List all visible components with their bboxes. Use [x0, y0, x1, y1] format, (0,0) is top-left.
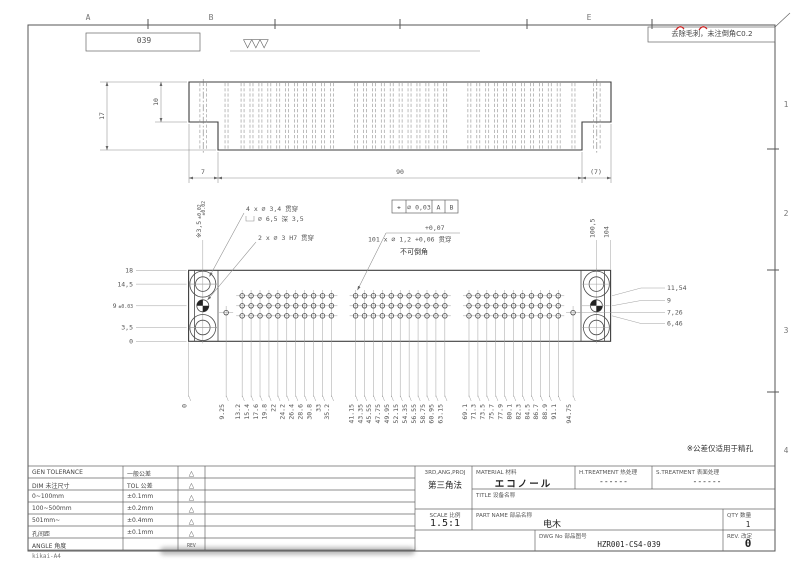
ordinate-elbow [496, 396, 498, 402]
qty-label: QTY 数量 [727, 511, 751, 519]
s-treatment-value: ------ [652, 477, 762, 486]
ordinate-label: 54.35 [401, 404, 409, 424]
ordinate-label: ※3,5±0.02 [195, 204, 203, 238]
callout-small-holes: 101 x ∅ 1,2 +0,06 贯穿 [368, 235, 451, 244]
ordinate-elbow [409, 396, 411, 402]
ordinate-elbow [278, 396, 280, 402]
ordinate-label: 84.5 [523, 404, 531, 420]
ordinate-leader [612, 301, 665, 306]
ordinate-label: 49.95 [383, 404, 391, 424]
h-treatment-label: H.TREATMENT 热处理 [579, 468, 637, 476]
ordinate-label: 9.25 [218, 404, 226, 420]
ordinate-elbow [323, 396, 325, 402]
fcf-position-icon: ⌖ [397, 204, 401, 212]
dowel-quadrant-fill [203, 306, 209, 312]
revision-triangle-icon: △ [189, 518, 195, 526]
ordinate-elbow [523, 396, 525, 402]
drawing-sheet: ABE12341710790(7)±0.0209.2513.215.417.61… [0, 0, 800, 566]
ordinate-label: 52.15 [392, 404, 400, 424]
ordinate-label: 17.6 [252, 404, 260, 420]
ordinate-label: 56.55 [410, 404, 418, 424]
ordinate-label: 18 [125, 267, 133, 275]
ordinate-label: 9 [667, 297, 671, 305]
dimension-label: (7) [590, 168, 602, 176]
rev-value: 0 [723, 537, 773, 550]
ordinate-label: 86.7 [532, 404, 540, 420]
ordinate-elbow [505, 396, 507, 402]
ordinate-label: 19.8 [261, 404, 269, 420]
ordinate-elbow [514, 396, 516, 402]
stamp-blur [160, 547, 415, 555]
ordinate-label: 0 [129, 338, 133, 346]
revision-triangle-icon: △ [189, 506, 195, 514]
dowel-quadrant-fill [590, 300, 596, 306]
ordinate-label: 30.8 [305, 404, 313, 420]
ordinate-label: 3,5 [121, 324, 133, 332]
ordinate-elbow [391, 396, 393, 402]
ordinate-elbow [400, 396, 402, 402]
ordinate-elbow [436, 396, 438, 402]
ordinate-label: 45.55 [365, 404, 373, 424]
ordinate-elbow [573, 396, 575, 402]
qty-value: 1 [723, 520, 773, 529]
zone-column-label: A [86, 13, 91, 22]
ordinate-elbow [382, 396, 384, 402]
ordinate-elbow [445, 396, 447, 402]
tolerance-cell: ANGLE 角度 [32, 541, 66, 550]
ordinate-elbow [418, 396, 420, 402]
ordinate-elbow [189, 396, 191, 402]
ordinate-elbow [531, 396, 533, 402]
ordinate-label: 63.15 [437, 404, 445, 424]
footer-code: kikai-A4 [32, 553, 61, 560]
ordinate-label: 28.6 [296, 404, 304, 420]
zone-column-label: B [209, 13, 214, 22]
zone-column-label: E [587, 13, 592, 22]
callout-dowel-holes: 2 x ∅ 3 H7 贯穿 [258, 233, 314, 242]
ordinate-elbow [549, 396, 551, 402]
tolerance-cell: TOL 公差 [127, 481, 153, 490]
material-label: MATERIAL 材料 [476, 468, 517, 476]
ordinate-elbow [427, 396, 429, 402]
revision-triangle-icon: △ [189, 530, 195, 538]
tolerance-cell: 501mm~ [32, 517, 60, 524]
top-view-outline [189, 82, 611, 150]
ordinate-elbow [558, 396, 560, 402]
ordinate-label: 69.1 [461, 404, 469, 420]
ordinate-label: 7,26 [667, 309, 683, 317]
fcf-tolerance: ∅ 0,03 [407, 204, 431, 212]
callout-leader [208, 242, 257, 300]
ordinate-elbow [251, 396, 253, 402]
callout-counterbore-holes: 4 x ∅ 3,4 贯穿 [246, 204, 298, 213]
ordinate-elbow [487, 396, 489, 402]
ordinate-elbow [242, 396, 244, 402]
title-label: TITLE 设备名称 [476, 491, 515, 499]
dwg-no-label: DWG No 部品图号 [539, 532, 587, 540]
ordinate-label: 60.95 [428, 404, 436, 424]
tolerance-cell: 0~100mm [32, 493, 64, 500]
ordinate-label: 71.3 [470, 404, 478, 420]
ordinate-elbow [373, 396, 375, 402]
ordinate-elbow [478, 396, 480, 402]
ordinate-elbow [269, 396, 271, 402]
scale-value: 1.5:1 [419, 518, 471, 529]
ordinate-elbow [314, 396, 316, 402]
tolerance-cell: 孔间距 [32, 529, 50, 538]
ordinate-label: 58.75 [419, 404, 427, 424]
ordinate-leader [612, 288, 665, 296]
ordinate-label: 33 [314, 404, 322, 412]
tolerance-cell: GEN TOLERANCE [32, 469, 83, 476]
ordinate-label: 43.35 [356, 404, 364, 424]
dimension-label: 90 [396, 168, 404, 176]
ordinate-label: 6,46 [667, 320, 683, 328]
ordinate-label: 0 [180, 404, 188, 408]
ordinate-label: 13.2 [234, 404, 242, 420]
tolerance-note: ※公差仅适用于精孔 [608, 443, 753, 454]
callout-counterbore-spec: ∅ 6,5 深 3,5 [258, 214, 304, 223]
ordinate-label: 35.2 [323, 404, 331, 420]
dimension-label: 17 [98, 112, 106, 120]
ordinate-elbow [260, 396, 262, 402]
ordinate-elbow [226, 396, 228, 402]
revision-triangle-icon: △ [189, 470, 195, 478]
projection-value: 第三角法 [419, 479, 471, 491]
s-treatment-label: S.TREATMENT 表面处理 [656, 468, 719, 476]
ordinate-label: 80.1 [505, 404, 513, 420]
zone-row-label: 1 [784, 100, 789, 109]
ordinate-label: 14,5 [117, 280, 133, 288]
ordinate-elbow [296, 396, 298, 402]
ordinate-label: 88.9 [541, 404, 549, 420]
corner-ref: 039 [88, 36, 200, 45]
ordinate-elbow [331, 396, 333, 402]
ordinate-elbow [305, 396, 307, 402]
ordinate-label: 94.75 [565, 404, 573, 424]
ordinate-label: 41.15 [347, 404, 355, 424]
fcf-datum-b: B [450, 204, 454, 212]
tolerance-cell: ±0.2mm [127, 505, 153, 512]
ordinate-elbow [356, 396, 358, 402]
callout-no-chamfer: 不可倒角 [400, 247, 428, 256]
tolerance-cell: ±0.4mm [127, 517, 153, 524]
ordinate-label: 11,54 [667, 284, 687, 292]
ordinate-label: 24.2 [279, 404, 287, 420]
deburr-note: 去除毛刺，未注倒角C0.2 [651, 29, 773, 39]
ordinate-label: 26.4 [288, 404, 296, 420]
ordinate-label: 15.4 [243, 404, 251, 420]
callout-small-holes-upper-tol: +0,07 [425, 224, 445, 232]
ordinate-label: 82.3 [514, 404, 522, 420]
tolerance-cell: DIM 未注尺寸 [32, 481, 69, 490]
counterbore-icon [246, 216, 254, 221]
dimension-label: 10 [152, 98, 160, 106]
ordinate-label: 91.1 [550, 404, 558, 420]
dowel-quadrant-fill [596, 306, 602, 312]
dowel-quadrant-fill [197, 300, 203, 306]
ordinate-label: 77.9 [496, 404, 504, 420]
ordinate-label: 47.75 [374, 404, 382, 424]
tolerance-cell: ±0.1mm [127, 493, 153, 500]
ordinate-label: 73.5 [479, 404, 487, 420]
ordinate-label: 22 [270, 404, 278, 412]
ordinate-label: 100,5 [588, 218, 596, 238]
dimension-label: 7 [201, 168, 205, 176]
zone-row-label: 4 [784, 446, 789, 455]
ordinate-elbow [540, 396, 542, 402]
tolerance-cell: ±0.1mm [127, 529, 153, 536]
ordinate-label: 9±0.03 [113, 302, 133, 310]
dwg-no-value: HZR001-CS4-039 [535, 540, 723, 549]
revision-triangle-icon: △ [189, 482, 195, 490]
ordinate-leader [612, 316, 665, 324]
projection-label: 3RD,ANG,PROJ [419, 470, 471, 476]
ordinate-label: 75.7 [488, 404, 496, 420]
tolerance-cell: 100~500mm [32, 505, 72, 512]
zone-row-label: 3 [784, 326, 789, 335]
revision-triangle-icon: △ [189, 494, 195, 502]
ordinate-elbow [287, 396, 289, 402]
tolerance-cell: 一般公差 [127, 469, 151, 478]
ordinate-elbow [365, 396, 367, 402]
zone-row-label: 2 [784, 209, 789, 218]
part-name-value: 电木 [472, 517, 632, 530]
material-value: エコノール [472, 476, 575, 490]
callout-leader [210, 213, 245, 277]
ordinate-label: 104 [603, 226, 611, 238]
fcf-datum-a: A [437, 204, 441, 212]
h-treatment-value: ------ [575, 477, 652, 486]
ordinate-elbow [469, 396, 471, 402]
surface-finish-icon: ▽▽▽ [243, 36, 268, 50]
corner-diagonal [775, 13, 790, 27]
